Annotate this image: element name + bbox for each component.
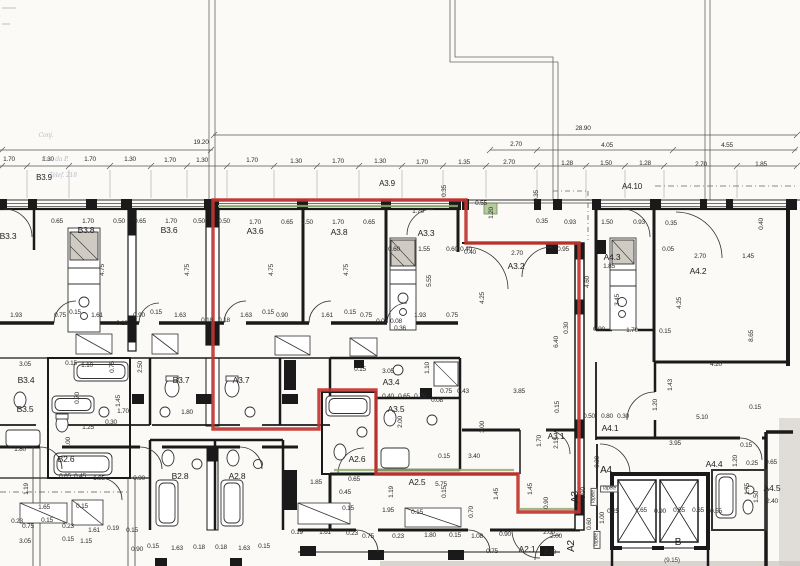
elevator-shaft: [612, 474, 708, 550]
floor-plan-sheet: 28.9019.202.704.054.551.701.301.701.301.…: [0, 0, 800, 566]
dimension-lines: [0, 132, 800, 198]
floor-plan-drawing: [0, 0, 800, 566]
